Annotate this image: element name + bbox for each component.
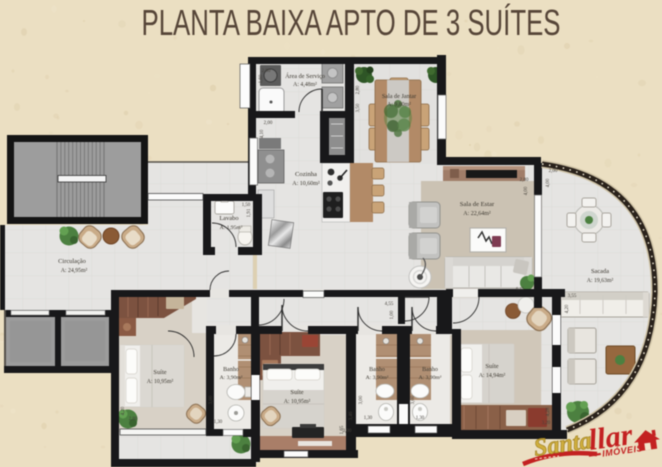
svg-text:3,55: 3,55 xyxy=(568,294,577,299)
svg-text:1,65: 1,65 xyxy=(340,425,345,434)
svg-text:A: 4,48m²: A: 4,48m² xyxy=(293,82,317,88)
svg-text:1,91: 1,91 xyxy=(247,208,252,217)
svg-text:PLANTA BAIXA APTO DE 3 SUÍTES: PLANTA BAIXA APTO DE 3 SUÍTES xyxy=(142,2,561,43)
svg-text:1,30: 1,30 xyxy=(364,416,373,421)
svg-text:1,50: 1,50 xyxy=(242,203,251,208)
svg-text:A: 19,63m²: A: 19,63m² xyxy=(587,278,614,284)
svg-text:A: 24,95m²: A: 24,95m² xyxy=(61,268,88,274)
svg-text:Sacada: Sacada xyxy=(591,268,609,275)
svg-text:2,00: 2,00 xyxy=(549,169,558,174)
svg-text:A: 3,90m²: A: 3,90m² xyxy=(419,375,442,381)
svg-text:4,28: 4,28 xyxy=(546,407,551,416)
svg-text:A: 3,90m²: A: 3,90m² xyxy=(366,375,389,381)
svg-text:1,60: 1,60 xyxy=(259,74,264,83)
svg-text:2,80: 2,80 xyxy=(520,178,529,183)
svg-text:3,00: 3,00 xyxy=(411,395,416,404)
svg-text:Sala de Jantar: Sala de Jantar xyxy=(382,93,416,100)
svg-text:A: 10,60m²: A: 10,60m² xyxy=(292,181,320,187)
svg-text:2,80: 2,80 xyxy=(262,69,271,74)
svg-text:4,20: 4,20 xyxy=(121,406,126,415)
svg-text:4,55: 4,55 xyxy=(385,302,394,307)
svg-text:3,00: 3,00 xyxy=(359,395,364,404)
svg-text:3,20: 3,20 xyxy=(542,421,551,426)
svg-text:2,00: 2,00 xyxy=(264,121,273,126)
svg-text:Suíte: Suíte xyxy=(485,363,498,370)
svg-text:Banho: Banho xyxy=(223,367,239,373)
svg-text:3,00: 3,00 xyxy=(209,395,214,404)
svg-text:Circulação: Circulação xyxy=(58,258,86,265)
svg-text:4,00: 4,00 xyxy=(546,178,551,187)
svg-text:A: 3,90m²: A: 3,90m² xyxy=(220,375,243,381)
svg-text:A: 10,95m²: A: 10,95m² xyxy=(147,379,174,385)
svg-text:Lavabo: Lavabo xyxy=(219,215,238,222)
svg-text:3,50: 3,50 xyxy=(356,103,361,112)
svg-text:3,46: 3,46 xyxy=(349,411,354,420)
svg-text:A: 1,95m²: A: 1,95m² xyxy=(220,225,243,231)
svg-text:Suíte: Suíte xyxy=(153,369,166,376)
svg-text:A: 9,80m²: A: 9,80m² xyxy=(387,102,411,108)
svg-text:Sala de Estar: Sala de Estar xyxy=(460,201,495,208)
svg-text:Suíte: Suíte xyxy=(290,389,303,396)
svg-text:1,00: 1,00 xyxy=(390,310,395,319)
svg-text:Banho: Banho xyxy=(422,367,438,373)
svg-text:A: 22,64m²: A: 22,64m² xyxy=(463,211,491,217)
svg-text:4,20: 4,20 xyxy=(565,304,570,313)
svg-text:2,80: 2,80 xyxy=(356,85,361,94)
svg-text:1,30: 1,30 xyxy=(214,420,223,425)
svg-text:Área de Serviço: Área de Serviço xyxy=(285,72,325,80)
svg-text:A: 14,94m²: A: 14,94m² xyxy=(479,373,506,379)
svg-text:1,30: 1,30 xyxy=(416,416,425,421)
svg-text:4,00: 4,00 xyxy=(524,186,529,195)
svg-text:Banho: Banho xyxy=(369,367,385,373)
svg-text:4,10: 4,10 xyxy=(260,129,265,138)
svg-text:A: 10,95m²: A: 10,95m² xyxy=(284,399,311,405)
svg-text:2,80: 2,80 xyxy=(129,417,138,422)
svg-text:Cozinha: Cozinha xyxy=(295,171,317,178)
